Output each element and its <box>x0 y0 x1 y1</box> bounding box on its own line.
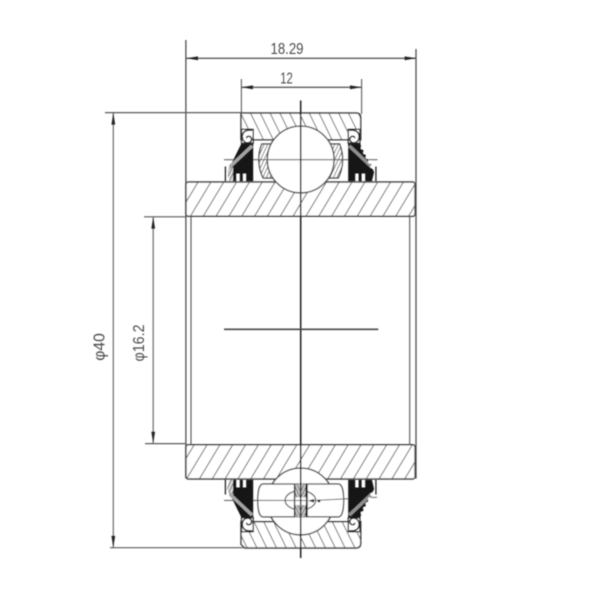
svg-text:12: 12 <box>280 71 293 88</box>
svg-text:18.29: 18.29 <box>271 41 304 58</box>
svg-text:φ40: φ40 <box>92 333 109 361</box>
svg-text:φ16.2: φ16.2 <box>131 325 148 362</box>
